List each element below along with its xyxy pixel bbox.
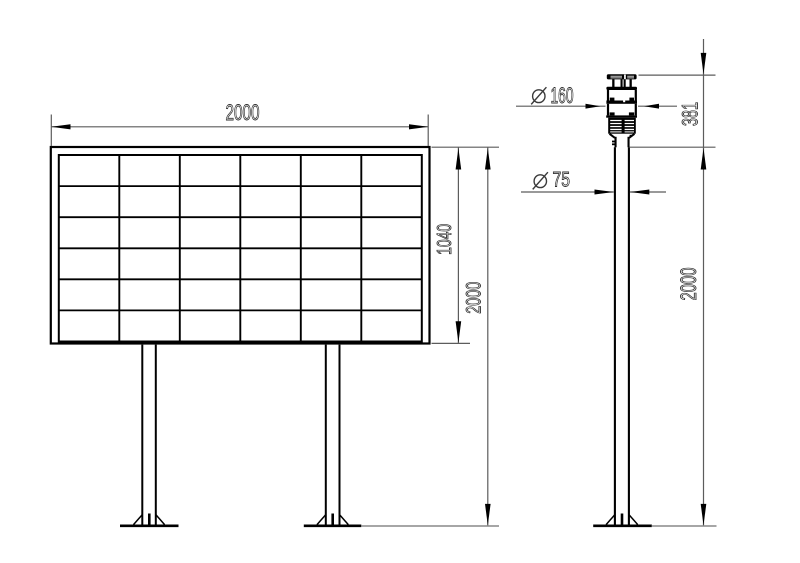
svg-text:1040: 1040 bbox=[433, 224, 456, 255]
svg-text:381: 381 bbox=[678, 102, 703, 126]
svg-text:160: 160 bbox=[551, 83, 574, 108]
svg-text:2000: 2000 bbox=[463, 282, 486, 314]
svg-text:2000: 2000 bbox=[676, 268, 701, 301]
svg-text:75: 75 bbox=[553, 169, 571, 192]
svg-text:2000: 2000 bbox=[226, 100, 260, 125]
